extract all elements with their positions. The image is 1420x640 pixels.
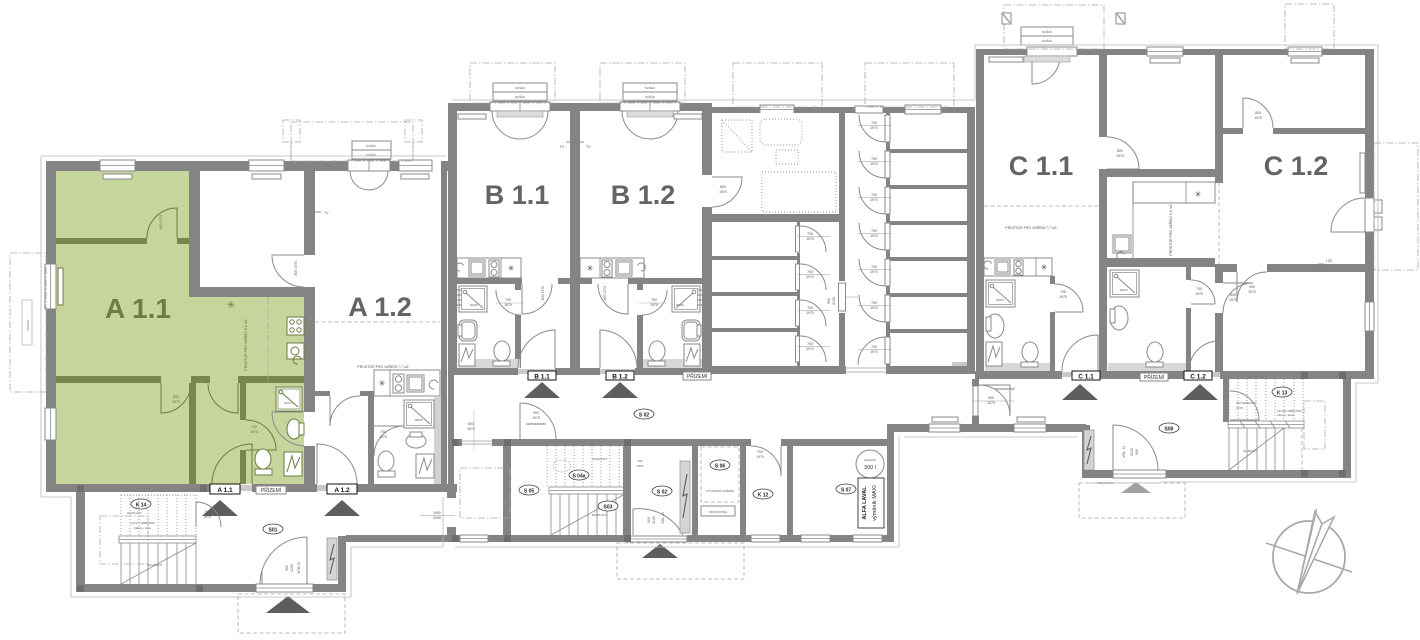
- svg-text:2100: 2100: [832, 297, 836, 305]
- svg-text:1970: 1970: [719, 190, 727, 194]
- svg-text:TV: TV: [586, 145, 591, 149]
- svg-text:✳: ✳: [508, 264, 515, 273]
- svg-text:800 1970: 800 1970: [603, 286, 607, 301]
- svg-text:PŘÍZEMÍ: PŘÍZEMÍ: [261, 486, 282, 494]
- svg-text:1970: 1970: [637, 464, 644, 468]
- svg-text:S 05: S 05: [524, 489, 535, 495]
- svg-text:1970: 1970: [870, 306, 878, 310]
- svg-text:K 12: K 12: [758, 493, 769, 499]
- svg-text:PROSTOR PRO VAŘENÍ 8,6 m2: PROSTOR PRO VAŘENÍ 8,6 m2: [243, 319, 248, 370]
- svg-text:1970: 1970: [806, 311, 814, 315]
- svg-text:800: 800: [1117, 149, 1123, 153]
- svg-text:S01: S01: [269, 528, 278, 534]
- svg-text:VOL. D: VOL. D: [661, 512, 665, 524]
- svg-text:700: 700: [251, 425, 257, 429]
- svg-text:900: 900: [1135, 449, 1139, 455]
- svg-text:K 13: K 13: [1277, 391, 1288, 397]
- svg-text:PROSTOR PRO VAŘENÍ 5,6 m2: PROSTOR PRO VAŘENÍ 5,6 m2: [1168, 204, 1173, 255]
- svg-text:✳: ✳: [587, 264, 594, 273]
- svg-text:900: 900: [988, 396, 994, 400]
- svg-text:✳: ✳: [227, 300, 235, 311]
- svg-text:1970: 1970: [870, 162, 878, 166]
- svg-text:POHOV: POHOV: [26, 320, 30, 331]
- svg-text:2000: 2000: [433, 516, 441, 520]
- svg-text:700: 700: [807, 232, 813, 236]
- svg-text:1970: 1970: [987, 401, 995, 405]
- svg-text:2100: 2100: [290, 564, 294, 572]
- svg-text:700: 700: [871, 121, 877, 125]
- svg-text:PROSTOR PRO VAŘENÍ 7,7 m2: PROSTOR PRO VAŘENÍ 7,7 m2: [357, 364, 408, 369]
- svg-text:1970: 1970: [870, 126, 878, 130]
- svg-text:LIŽI: LIŽI: [1326, 258, 1332, 263]
- svg-text:S 06: S 06: [715, 464, 726, 470]
- svg-text:300 l: 300 l: [864, 465, 876, 471]
- svg-text:1970: 1970: [1059, 295, 1067, 299]
- svg-text:2100: 2100: [1130, 448, 1134, 456]
- svg-text:8x167x277: 8x167x277: [593, 457, 608, 461]
- svg-text:PŘÍZEMÍ: PŘÍZEMÍ: [1144, 373, 1165, 381]
- svg-text:S 02: S 02: [639, 413, 650, 419]
- svg-text:1000: 1000: [433, 511, 441, 515]
- svg-text:S 02: S 02: [657, 490, 668, 496]
- svg-text:zásobník: zásobník: [864, 458, 877, 462]
- svg-text:700: 700: [1196, 287, 1202, 291]
- svg-text:samozavírač: samozavírač: [526, 422, 546, 426]
- svg-text:1970: 1970: [806, 347, 814, 351]
- svg-text:S 04a: S 04a: [572, 474, 585, 480]
- svg-text:900: 900: [827, 298, 831, 304]
- svg-text:700: 700: [807, 306, 813, 310]
- svg-text:SUŠÁK: SUŠÁK: [515, 94, 525, 99]
- svg-text:1970: 1970: [806, 237, 814, 241]
- svg-text:700: 700: [380, 430, 386, 434]
- svg-text:2x22,5 OBR OKR: 2x22,5 OBR OKR: [131, 521, 156, 525]
- svg-text:800: 800: [468, 422, 474, 426]
- svg-text:C 1.2: C 1.2: [1264, 151, 1329, 181]
- svg-text:C 1.1: C 1.1: [1078, 374, 1094, 381]
- svg-text:700: 700: [637, 459, 642, 463]
- svg-text:800: 800: [720, 185, 726, 189]
- svg-text:700: 700: [871, 229, 877, 233]
- svg-text:900: 900: [533, 411, 539, 415]
- svg-text:90/90: 90/90: [996, 298, 1004, 302]
- svg-text:SUŠÁK: SUŠÁK: [1042, 29, 1052, 34]
- svg-text:A 1.1: A 1.1: [105, 293, 171, 324]
- svg-text:VOL. D: VOL. D: [1122, 446, 1126, 458]
- svg-text:SUŠÁK: SUŠÁK: [645, 94, 655, 99]
- svg-text:700: 700: [871, 157, 877, 161]
- svg-text:PROSTOR PRO VAŘENÍ 7,7 m2: PROSTOR PRO VAŘENÍ 7,7 m2: [1005, 225, 1056, 230]
- svg-text:2100: 2100: [652, 516, 656, 524]
- svg-text:700: 700: [1060, 290, 1066, 294]
- svg-text:S 07: S 07: [841, 488, 852, 494]
- svg-text:1970: 1970: [532, 416, 540, 420]
- svg-text:900: 900: [285, 565, 289, 571]
- svg-text:700: 700: [505, 298, 511, 302]
- svg-text:1970: 1970: [250, 430, 258, 434]
- svg-text:B 1.1: B 1.1: [534, 374, 550, 381]
- svg-text:B 1.2: B 1.2: [612, 374, 628, 381]
- svg-text:1970: 1970: [870, 198, 878, 202]
- svg-text:1970: 1970: [172, 400, 180, 404]
- svg-text:9x160x277: 9x160x277: [1243, 449, 1258, 453]
- svg-text:700: 700: [871, 301, 877, 305]
- svg-text:90/90: 90/90: [415, 418, 423, 422]
- svg-text:ALFA LAVAL: ALFA LAVAL: [862, 486, 868, 520]
- svg-text:1970: 1970: [1254, 116, 1262, 120]
- svg-text:700: 700: [204, 510, 210, 514]
- svg-text:8x167x277: 8x167x277: [592, 513, 607, 517]
- svg-text:VCH. D: VCH. D: [297, 562, 301, 574]
- svg-text:1970: 1970: [504, 303, 512, 307]
- svg-text:STROJOVNA: STROJOVNA: [709, 510, 727, 514]
- svg-text:1970: 1970: [1229, 298, 1237, 302]
- svg-text:800 1970: 800 1970: [159, 215, 163, 230]
- svg-text:S00: S00: [1165, 427, 1174, 433]
- svg-text:1970: 1970: [870, 270, 878, 274]
- svg-text:90/90: 90/90: [284, 401, 292, 405]
- svg-text:zábrg + stup: zábrg + stup: [1277, 413, 1294, 417]
- svg-text:B 1.2: B 1.2: [611, 180, 676, 210]
- svg-text:1970: 1970: [1116, 154, 1124, 158]
- svg-text:700: 700: [871, 193, 877, 197]
- svg-text:✳: ✳: [379, 379, 386, 388]
- svg-text:90/90: 90/90: [1120, 288, 1128, 292]
- svg-text:1970: 1970: [1248, 290, 1256, 294]
- svg-text:1970: 1970: [650, 303, 658, 307]
- svg-text:9x167x277: 9x167x277: [148, 563, 163, 567]
- svg-text:700: 700: [807, 342, 813, 346]
- svg-text:SUŠÁK: SUŠÁK: [645, 85, 655, 90]
- svg-text:800 1970: 800 1970: [541, 286, 545, 301]
- svg-text:1970: 1970: [1195, 292, 1203, 296]
- svg-text:C 1.2: C 1.2: [1190, 374, 1206, 381]
- svg-text:700: 700: [757, 450, 763, 454]
- svg-text:700: 700: [871, 265, 877, 269]
- svg-text:SUŠÁK: SUŠÁK: [515, 85, 525, 90]
- svg-text:B 1.1: B 1.1: [485, 180, 550, 210]
- svg-text:800: 800: [1230, 293, 1236, 297]
- svg-text:✳: ✳: [1195, 190, 1202, 199]
- svg-text:1970: 1970: [870, 350, 878, 354]
- svg-text:1970: 1970: [756, 455, 764, 459]
- svg-text:1970: 1970: [379, 435, 387, 439]
- svg-text:700: 700: [871, 345, 877, 349]
- svg-text:A 1.2: A 1.2: [348, 292, 412, 322]
- svg-text:1970: 1970: [203, 515, 211, 519]
- svg-text:výměník MAXI: výměník MAXI: [872, 485, 878, 521]
- svg-text:700: 700: [807, 270, 813, 274]
- svg-text:90/90: 90/90: [676, 303, 684, 307]
- svg-text:800: 800: [173, 395, 179, 399]
- svg-text:SUŠÁK: SUŠÁK: [1042, 38, 1052, 43]
- svg-text:800: 800: [1255, 111, 1261, 115]
- svg-text:900: 900: [1249, 285, 1255, 289]
- svg-text:SUŠÁK: SUŠÁK: [366, 143, 376, 148]
- svg-text:1970: 1970: [1236, 406, 1243, 410]
- svg-text:700: 700: [651, 298, 657, 302]
- svg-text:S03: S03: [604, 505, 613, 511]
- svg-text:1970: 1970: [806, 275, 814, 279]
- svg-text:9x167x277: 9x167x277: [127, 511, 142, 515]
- svg-text:PŘÍZEMÍ: PŘÍZEMÍ: [687, 372, 708, 380]
- svg-text:A 1.2: A 1.2: [334, 487, 350, 494]
- svg-text:samozavírač: samozavírač: [995, 387, 1015, 391]
- svg-text:TV: TV: [560, 145, 565, 149]
- svg-text:C 1.1: C 1.1: [1009, 151, 1074, 181]
- svg-text:1970: 1970: [870, 234, 878, 238]
- svg-text:900: 900: [647, 517, 651, 523]
- svg-text:800 1970: 800 1970: [294, 261, 298, 276]
- svg-text:A 1.1: A 1.1: [217, 487, 233, 494]
- svg-text:✳: ✳: [1041, 263, 1048, 272]
- svg-text:TV: TV: [324, 211, 329, 215]
- svg-text:90/90: 90/90: [470, 303, 478, 307]
- svg-text:VÝTAHOVÁ KABINA: VÝTAHOVÁ KABINA: [706, 489, 734, 493]
- svg-text:K 14: K 14: [136, 503, 147, 509]
